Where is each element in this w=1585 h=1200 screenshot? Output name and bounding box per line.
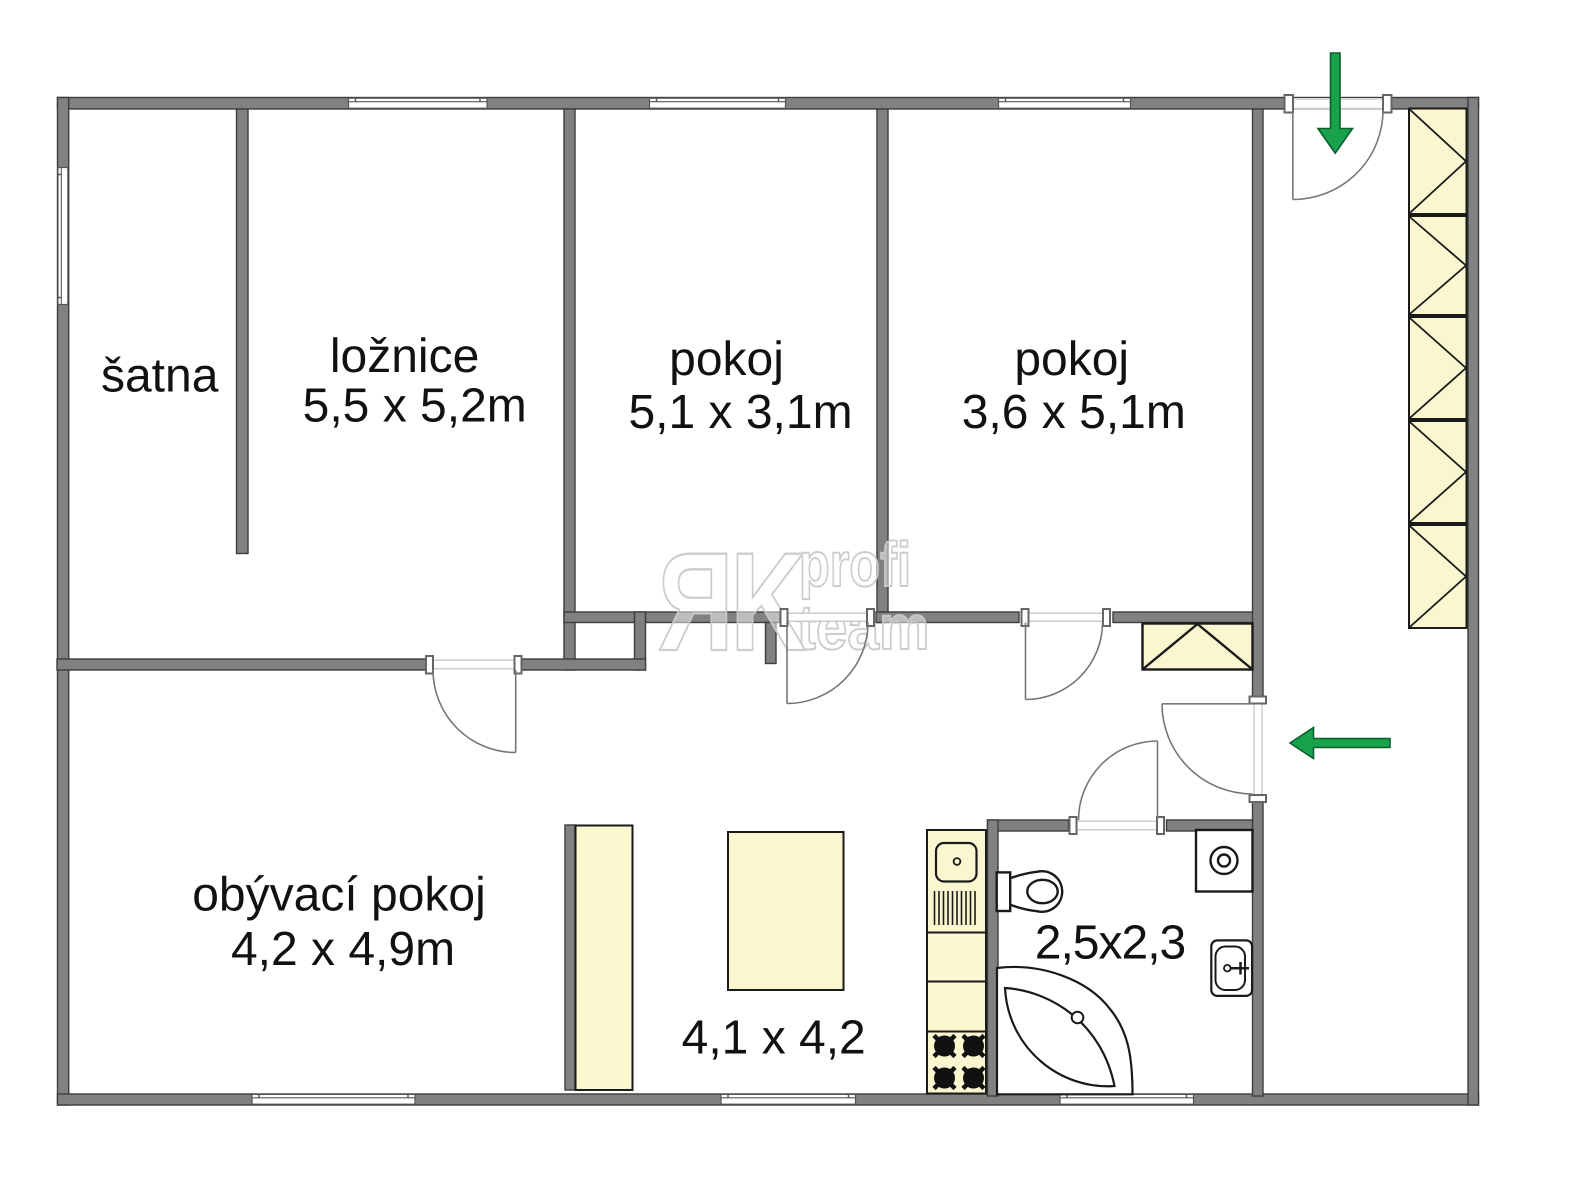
svg-text:team: team — [797, 593, 929, 663]
svg-text:5,5 x 5,2m: 5,5 x 5,2m — [303, 380, 527, 433]
svg-text:4,1 x 4,2: 4,1 x 4,2 — [682, 1012, 866, 1065]
svg-text:ložnice: ložnice — [330, 330, 479, 383]
svg-text:pokoj: pokoj — [1014, 333, 1129, 386]
svg-text:ЯK: ЯK — [658, 523, 805, 680]
svg-text:3,6 x 5,1m: 3,6 x 5,1m — [962, 386, 1186, 439]
svg-text:obývací pokoj: obývací pokoj — [192, 869, 486, 922]
svg-text:5,1 x 3,1m: 5,1 x 3,1m — [628, 386, 852, 439]
svg-text:profi: profi — [799, 530, 911, 600]
svg-text:4,2 x 4,9m: 4,2 x 4,9m — [231, 923, 455, 976]
svg-text:šatna: šatna — [101, 349, 219, 402]
svg-text:pokoj: pokoj — [669, 333, 784, 386]
svg-text:2,5x2,3: 2,5x2,3 — [1035, 917, 1185, 970]
